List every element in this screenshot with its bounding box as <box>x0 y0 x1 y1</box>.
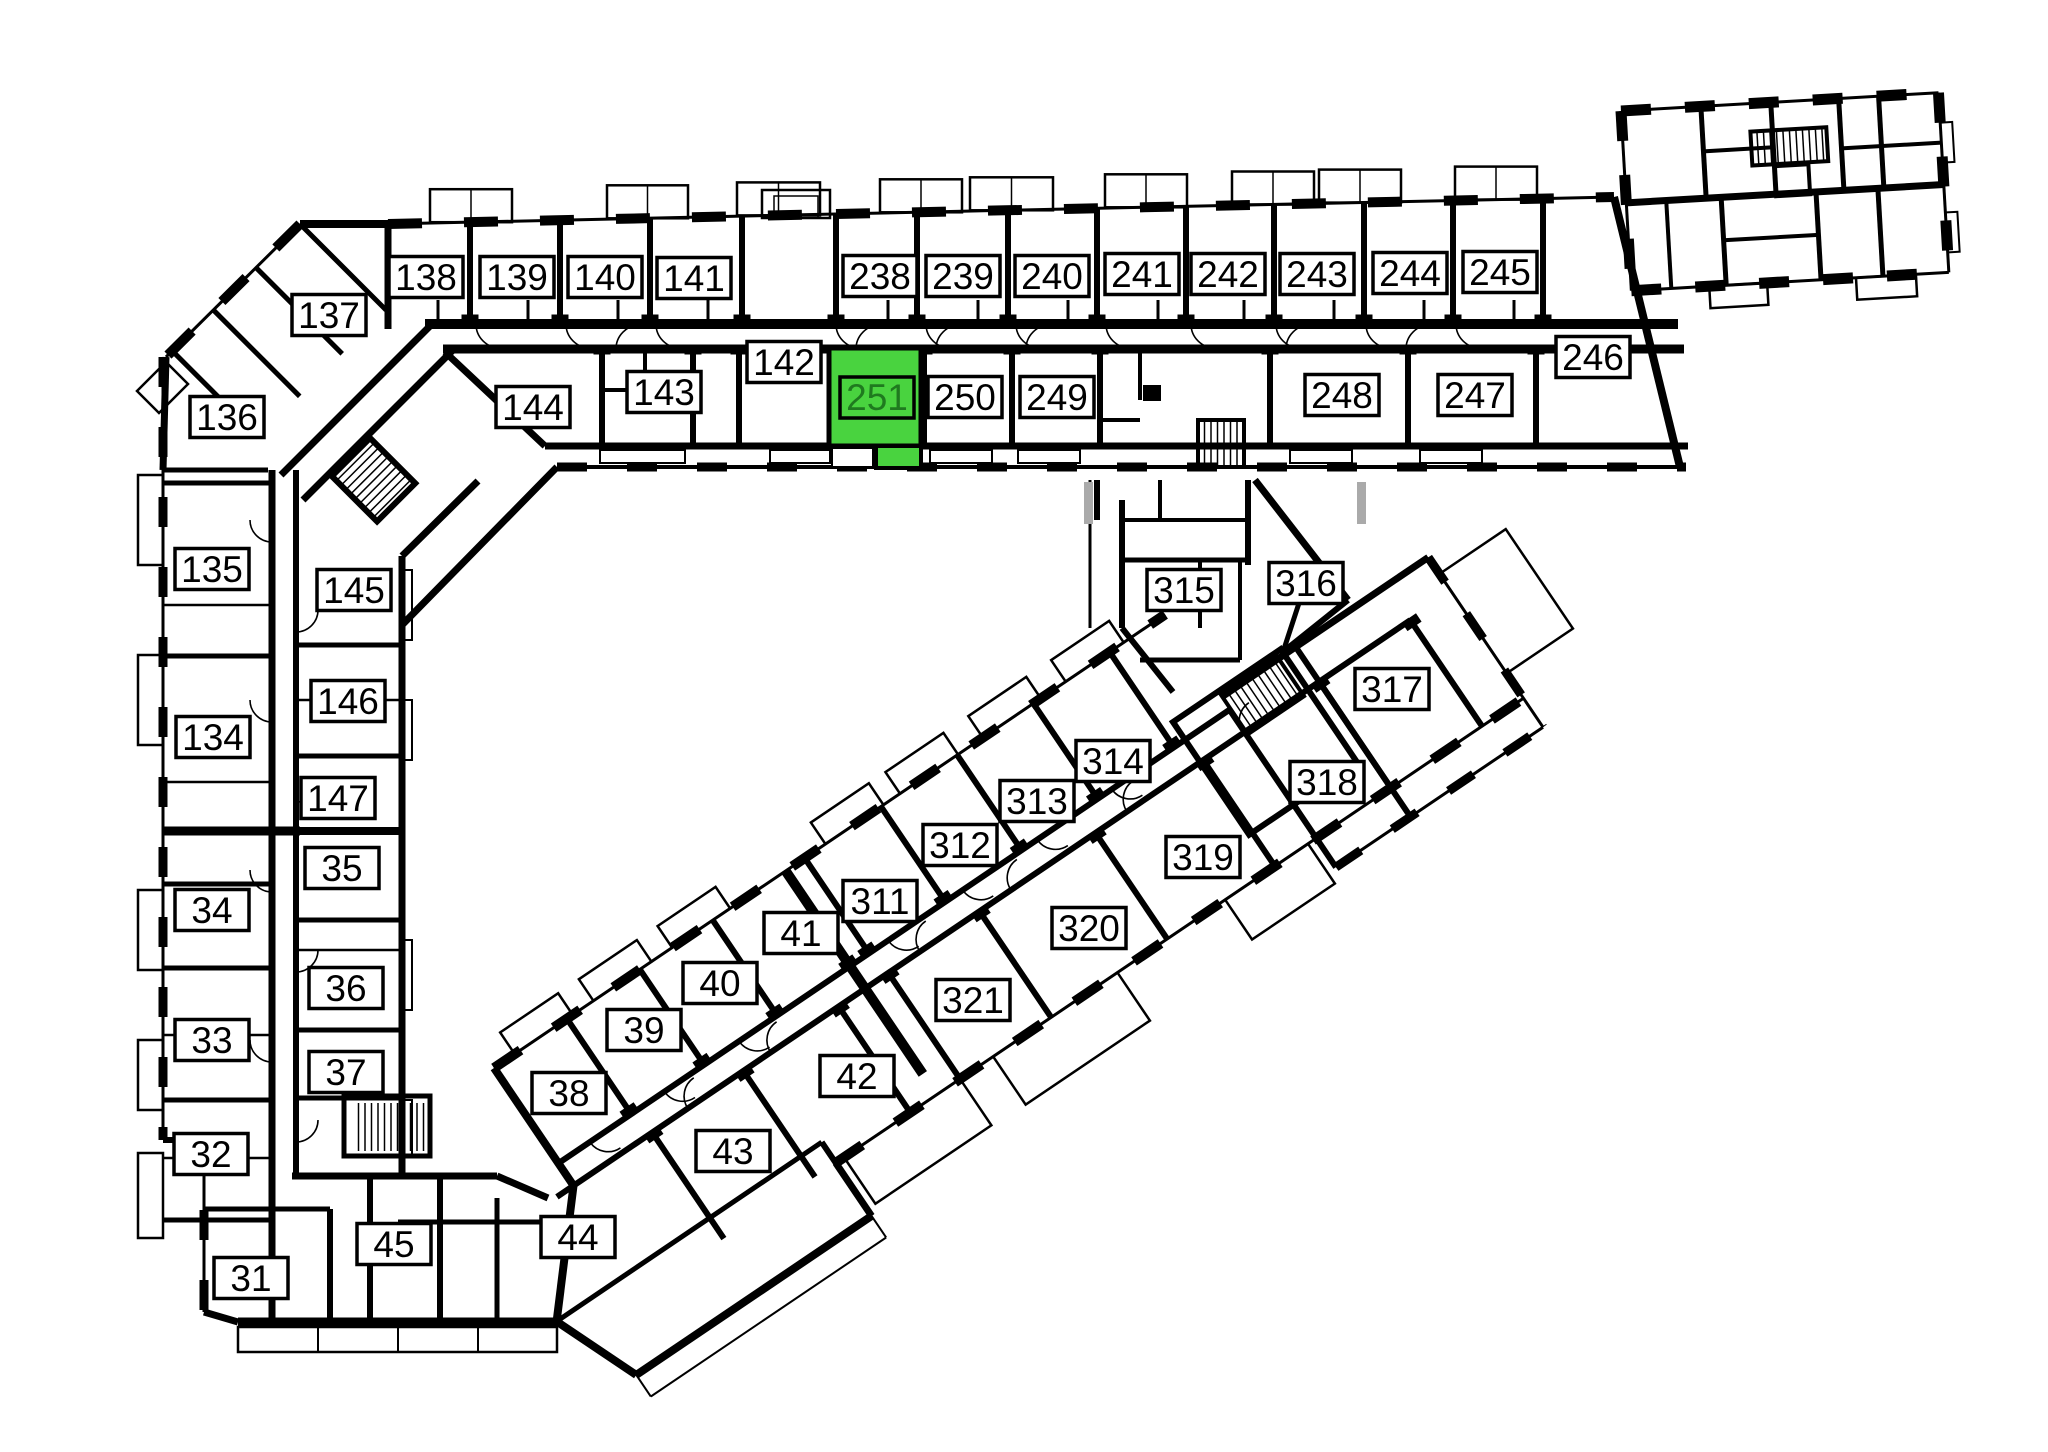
svg-text:241: 241 <box>1111 254 1173 295</box>
svg-text:138: 138 <box>395 257 457 298</box>
svg-text:36: 36 <box>325 968 366 1009</box>
svg-text:147: 147 <box>307 778 369 819</box>
svg-text:317: 317 <box>1361 669 1423 710</box>
svg-text:313: 313 <box>1006 781 1068 822</box>
svg-text:40: 40 <box>699 963 740 1004</box>
svg-text:140: 140 <box>574 257 636 298</box>
svg-text:136: 136 <box>196 397 258 438</box>
svg-text:249: 249 <box>1026 377 1088 418</box>
svg-text:141: 141 <box>663 258 725 299</box>
svg-text:239: 239 <box>932 256 994 297</box>
svg-text:320: 320 <box>1058 908 1120 949</box>
svg-text:312: 312 <box>929 825 991 866</box>
svg-text:45: 45 <box>373 1224 414 1265</box>
svg-text:311: 311 <box>851 881 910 922</box>
svg-text:314: 314 <box>1082 741 1144 782</box>
svg-text:238: 238 <box>849 256 911 297</box>
svg-text:242: 242 <box>1197 254 1259 295</box>
svg-text:142: 142 <box>753 342 815 383</box>
svg-text:321: 321 <box>942 980 1004 1021</box>
svg-text:245: 245 <box>1469 252 1531 293</box>
svg-text:244: 244 <box>1379 253 1441 294</box>
svg-text:145: 145 <box>323 570 385 611</box>
svg-text:38: 38 <box>548 1073 589 1114</box>
svg-text:34: 34 <box>191 890 232 931</box>
svg-text:35: 35 <box>321 848 362 889</box>
svg-text:137: 137 <box>298 295 360 336</box>
svg-text:247: 247 <box>1444 375 1506 416</box>
svg-text:146: 146 <box>317 681 379 722</box>
svg-text:135: 135 <box>181 549 243 590</box>
svg-text:41: 41 <box>780 913 821 954</box>
svg-text:39: 39 <box>623 1010 664 1051</box>
svg-text:42: 42 <box>836 1056 877 1097</box>
svg-text:44: 44 <box>557 1217 598 1258</box>
svg-text:43: 43 <box>712 1131 753 1172</box>
svg-text:318: 318 <box>1296 762 1358 803</box>
svg-text:134: 134 <box>182 717 244 758</box>
svg-text:240: 240 <box>1021 256 1083 297</box>
svg-text:243: 243 <box>1286 254 1348 295</box>
svg-text:251: 251 <box>846 377 908 418</box>
svg-text:144: 144 <box>502 387 564 428</box>
svg-text:143: 143 <box>633 372 695 413</box>
svg-text:316: 316 <box>1275 563 1337 604</box>
svg-text:33: 33 <box>191 1020 232 1061</box>
svg-text:37: 37 <box>325 1052 366 1093</box>
svg-text:139: 139 <box>486 257 548 298</box>
svg-text:246: 246 <box>1562 337 1624 378</box>
svg-text:248: 248 <box>1311 375 1373 416</box>
svg-text:31: 31 <box>230 1258 271 1299</box>
svg-text:32: 32 <box>190 1134 231 1175</box>
svg-text:319: 319 <box>1172 837 1234 878</box>
svg-text:250: 250 <box>934 377 996 418</box>
svg-text:315: 315 <box>1153 570 1215 611</box>
